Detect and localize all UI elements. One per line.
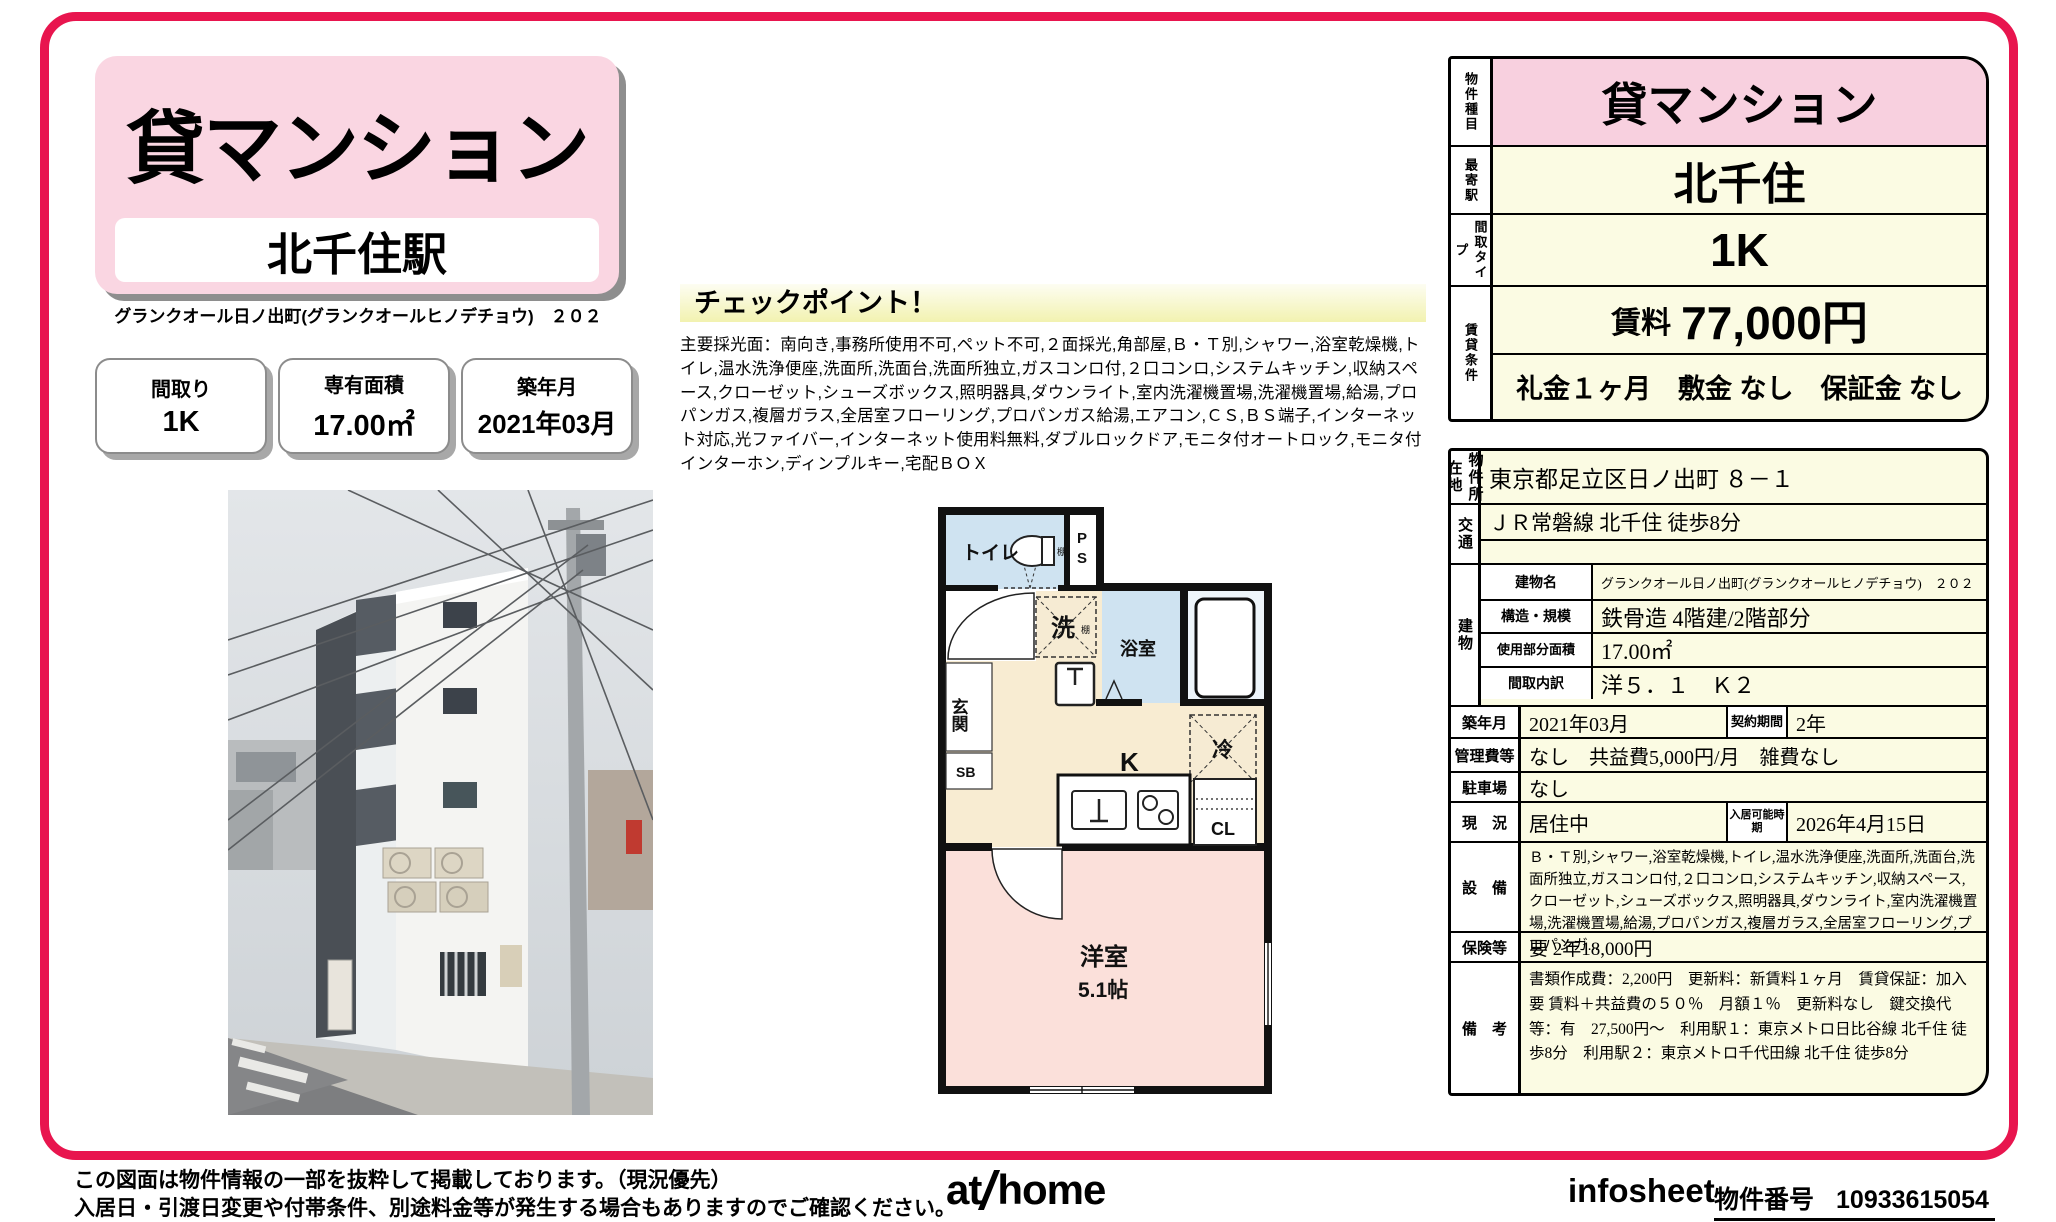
contract-term-label: 契約期間: [1726, 707, 1788, 737]
plan-bathtub: [1196, 599, 1254, 697]
spec-label: 築年月: [517, 371, 577, 400]
plan-label-washer-shelf: 棚: [1081, 624, 1090, 635]
table-row-management: 管理費等 なし 共益費5,000円/月 雑費なし: [1451, 737, 1986, 771]
row-label: 間取タイプ: [1452, 215, 1490, 285]
spec-box-built: 築年月 2021年03月: [461, 358, 633, 454]
photo-window-4f: [443, 602, 477, 628]
row-label: 備 考: [1451, 963, 1521, 1093]
table-row: 最寄駅 北千住: [1451, 145, 1986, 213]
photo-vending-machine: [626, 820, 642, 854]
sub-label: 構造・規模: [1481, 601, 1593, 632]
athome-logo: at home: [946, 1166, 1105, 1214]
photo-entrance-door: [328, 960, 352, 1030]
plan-label-ps: S: [1077, 550, 1087, 567]
table-row-building: 建物 建物名 グランクオール日ノ出町(グランクオールヒノデチョウ) ２０２ 構造…: [1451, 563, 1986, 705]
title-box: 貸マンション 北千住駅: [95, 56, 619, 294]
structure-value: 鉄骨造 4階建/2階部分: [1593, 601, 1986, 632]
table-row-conditions: 賃貸条件 賃料 77,000円 礼金１ヶ月 敷金 なし 保証金 なし: [1451, 285, 1986, 419]
floor-plan: トイレ 棚 P S 浴室 洗 棚 玄関 SB K 冷 CL 洋室 5.1帖: [938, 503, 1272, 1100]
property-type-value: 貸マンション: [1493, 59, 1986, 145]
plan-label-room: 洋室: [1080, 943, 1128, 971]
plan-label-fridge: 冷: [1212, 738, 1233, 762]
detail-table: 物件所在地 東京都足立区日ノ出町 ８－１ 交通 ＪＲ常磐線 北千住 徒歩8分 建…: [1448, 448, 1989, 1096]
fees-row: 礼金１ヶ月 敷金 なし 保証金 なし: [1493, 353, 1986, 417]
row-label: 物件種目: [1461, 72, 1480, 132]
building-photo: [228, 490, 653, 1115]
table-row-insurance: 保険等 要 2年18,000円: [1451, 931, 1986, 961]
table-row-parking: 駐車場 なし: [1451, 771, 1986, 801]
spec-value: 2021年03月: [478, 404, 617, 441]
status-value: 居住中: [1521, 803, 1726, 841]
management-fee-value: なし 共益費5,000円/月 雑費なし: [1521, 739, 1986, 771]
address-value: 東京都足立区日ノ出町 ８－１: [1481, 451, 1986, 503]
row-label: 建物: [1454, 618, 1475, 652]
plan-sink: [1056, 663, 1094, 705]
plan-label-entrance: 玄関: [949, 697, 969, 732]
row-label: 設 備: [1451, 843, 1521, 931]
built-value: 2021年03月: [1521, 707, 1726, 737]
plan-label-kitchen: K: [1120, 747, 1139, 777]
plan-label-shoebox: SB: [956, 764, 975, 780]
table-row-access: 交通 ＪＲ常磐線 北千住 徒歩8分: [1451, 503, 1986, 563]
spec-box-area: 専有面積 17.00㎡: [278, 358, 450, 454]
plan-label-toilet: トイレ: [962, 543, 1019, 564]
property-number: 物件番号10933615054: [1714, 1180, 1995, 1221]
row-label: 最寄駅: [1461, 158, 1480, 203]
table-row-notes: 備 考 書類作成費：2,200円 更新料：新賃料１ヶ月 賃貸保証：加入要 賃料＋…: [1451, 961, 1986, 1093]
sub-label: 間取内訳: [1481, 668, 1593, 699]
checkpoint-title: チェックポイント！: [680, 284, 1426, 322]
infosheet-label: infosheet: [1568, 1172, 1715, 1210]
photo-window-3f: [443, 688, 477, 714]
rent-value: 77,000円: [1681, 287, 1868, 353]
sub-label: 建物名: [1481, 565, 1593, 599]
equipment-value: Ｂ・Ｔ別,シャワー,浴室乾燥機,トイレ,温水洗浄便座,洗面所,洗面台,洗面所独立…: [1521, 843, 1986, 931]
row-label: 管理費等: [1451, 739, 1521, 771]
photo-bg-house-right: [588, 770, 653, 910]
photo-window-2f: [443, 782, 477, 808]
logo-at: at: [946, 1166, 981, 1214]
logo-home: home: [997, 1166, 1105, 1214]
nearest-station-value: 北千住: [1493, 147, 1986, 213]
access-line2: [1481, 541, 1986, 561]
sub-label: 使用部分面積: [1481, 634, 1593, 666]
checkpoint-body: 主要採光面：南向き,事務所使用不可,ペット不可,２面採光,角部屋,Ｂ・Ｔ別,シャ…: [680, 334, 1428, 477]
plan-label-room-size: 5.1帖: [1078, 979, 1128, 1002]
move-in-value: 2026年4月15日: [1788, 803, 1986, 841]
plan-label-shelf: 棚: [1057, 546, 1066, 557]
spec-value: 1K: [162, 406, 199, 439]
row-label: 保険等: [1451, 933, 1521, 961]
table-row-address: 物件所在地 東京都足立区日ノ出町 ８－１: [1451, 451, 1986, 503]
spec-label: 専有面積: [324, 369, 404, 398]
layout-detail-value: 洋５．１ Ｋ２: [1593, 668, 1986, 699]
summary-table: 物件種目 貸マンション 最寄駅 北千住 間取タイプ 1K 賃貸条件 賃料 77,…: [1448, 56, 1989, 422]
disclaimer-line-1: この図面は物件情報の一部を抜粋して掲載しております。（現況優先）: [74, 1164, 732, 1194]
spec-value: 17.00㎡: [313, 402, 415, 444]
table-row: 物件種目 貸マンション: [1451, 59, 1986, 145]
rent-label: 賃料: [1611, 298, 1671, 342]
plan-label-bath: 浴室: [1120, 638, 1156, 659]
property-category-title: 貸マンション: [95, 66, 619, 216]
photo-balcony-3: [356, 784, 396, 846]
move-in-label: 入居可能時期: [1726, 803, 1788, 841]
station-name-box: 北千住駅: [115, 218, 599, 282]
row-label: 物件所在地: [1448, 451, 1486, 503]
access-line1: ＪＲ常磐線 北千住 徒歩8分: [1481, 505, 1986, 539]
notes-value: 書類作成費：2,200円 更新料：新賃料１ヶ月 賃貸保証：加入要 賃料＋共益費の…: [1521, 963, 1986, 1093]
photo-bg-window: [236, 752, 296, 782]
contract-term-value: 2年: [1788, 707, 1986, 737]
plan-label-closet: CL: [1211, 819, 1235, 839]
spec-box-layout: 間取り 1K: [95, 358, 267, 454]
row-label: 現 況: [1451, 803, 1521, 841]
photo-meter-box: [500, 945, 522, 987]
table-row-status: 現 況 居住中 入居可能時期 2026年4月15日: [1451, 801, 1986, 841]
table-row-built: 築年月 2021年03月 契約期間 2年: [1451, 705, 1986, 737]
table-row-equipment: 設 備 Ｂ・Ｔ別,シャワー,浴室乾燥機,トイレ,温水洗浄便座,洗面所,洗面台,洗…: [1451, 841, 1986, 931]
infosheet-page: 貸マンション 北千住駅 グランクオール日ノ出町(グランクオールヒノデチョウ) ２…: [0, 0, 2056, 1222]
layout-type-value: 1K: [1493, 215, 1986, 285]
rent-row: 賃料 77,000円: [1493, 287, 1986, 353]
disclaimer-line-2: 入居日・引渡日変更や付帯条件、別途料金等が発生する場合もありますのでご確認くださ…: [74, 1192, 956, 1222]
plan-label-washer: 洗: [1051, 615, 1075, 642]
row-label: 築年月: [1451, 707, 1521, 737]
plan-label-ps: P: [1077, 530, 1087, 547]
property-number-label: 物件番号: [1714, 1186, 1814, 1214]
row-label: 賃貸条件: [1461, 323, 1480, 383]
building-name-value: グランクオール日ノ出町(グランクオールヒノデチョウ) ２０２: [1593, 565, 1986, 599]
row-label: 駐車場: [1451, 773, 1521, 801]
parking-value: なし: [1521, 773, 1986, 801]
row-label: 交通: [1454, 517, 1475, 551]
property-number-value: 10933615054: [1836, 1186, 1989, 1214]
table-row: 間取タイプ 1K: [1451, 213, 1986, 285]
spec-label: 間取り: [151, 373, 211, 402]
photo-balcony-2: [356, 688, 396, 750]
insurance-value: 要 2年18,000円: [1521, 933, 1986, 961]
photo-building-front-face: [396, 568, 528, 1078]
used-area-value: 17.00㎡: [1593, 634, 1986, 666]
plan-kitchen-counter: [1058, 775, 1190, 845]
building-name-line: グランクオール日ノ出町(グランクオールヒノデチョウ) ２０２: [88, 302, 628, 327]
